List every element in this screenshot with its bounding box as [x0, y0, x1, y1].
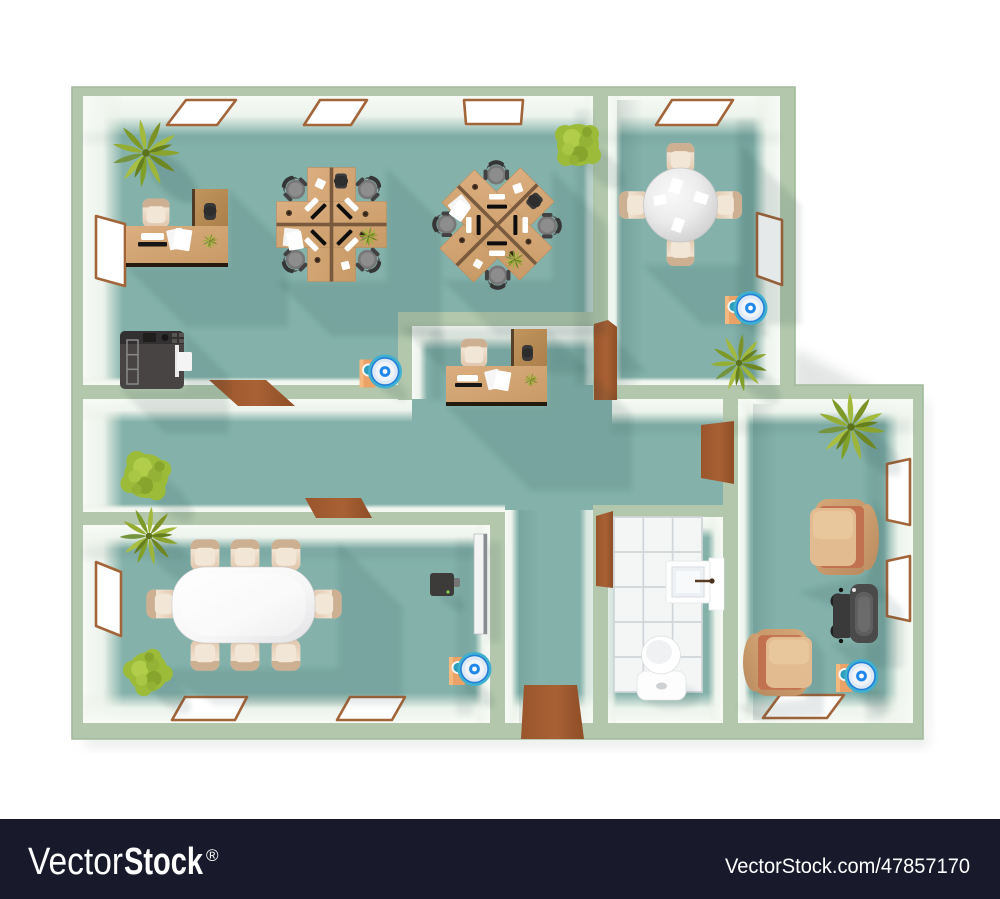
svg-text:Vector: Vector [28, 841, 123, 883]
svg-text:®: ® [206, 846, 219, 865]
svg-text:Stock: Stock [124, 841, 204, 883]
svg-text:VectorStock.com/47857170: VectorStock.com/47857170 [725, 855, 970, 878]
